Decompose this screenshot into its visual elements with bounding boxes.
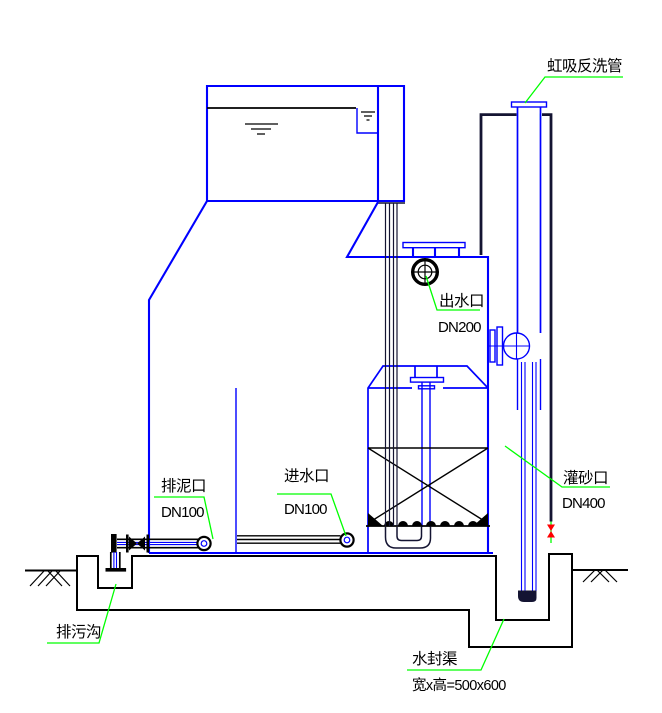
label-sewage-ditch: 排污沟: [47, 584, 116, 643]
outlet-size-label: DN200: [438, 319, 481, 336]
inner-filter-tank: [366, 366, 490, 553]
inlet-size-label: DN100: [284, 501, 327, 518]
seal-pipe-elbow: [518, 591, 537, 603]
water-seal-label: 水封渠: [412, 650, 457, 668]
leader-siphon-backwash: [525, 77, 623, 103]
elbow-flange: [111, 534, 117, 553]
water-seal-dim-label: 宽x高=500x600: [412, 677, 506, 694]
label-siphon-backwash: 虹吸反洗管: [525, 57, 623, 103]
foundation: [25, 554, 628, 647]
drain-valve-red-icon: [547, 525, 555, 532]
valve-flange-right: [147, 535, 150, 553]
mud-port-label: 排泥口: [161, 477, 206, 495]
drop-pipe-bore: [114, 552, 117, 568]
inner-tank-flange-collar: [419, 386, 435, 389]
label-outlet: 出水口 DN200: [426, 276, 484, 336]
label-mud-port: 排泥口 DN100: [154, 477, 213, 539]
outlet-port-symbol: [411, 258, 439, 286]
seal-drop-pipe: [522, 362, 537, 591]
inlet-pipe-end-flange: [340, 533, 353, 546]
inner-tank-flange-posts: [415, 366, 437, 378]
central-riser-pipe: [422, 382, 430, 527]
valve-flange-left: [126, 535, 129, 553]
siphon-chamber-top: [403, 243, 465, 258]
riser-top-flange: [512, 102, 547, 107]
inlet-pipe-walls: [237, 536, 340, 543]
drawing-canvas: 虹吸反洗管 出水口 DN200 排泥口 DN100 进水口 DN100 灌砂口 …: [0, 0, 662, 713]
mud-pipe-end-flange: [197, 537, 210, 550]
inner-tank-flange-plate: [411, 378, 444, 383]
sewage-ditch-label: 排污沟: [56, 623, 101, 641]
u-bend-pipe: [386, 527, 431, 548]
chamber-flange-posts: [413, 248, 459, 257]
label-water-seal: 水封渠 宽x高=500x600: [407, 619, 506, 694]
water-level-symbol: [245, 112, 375, 134]
upper-wash-tank: [207, 86, 405, 203]
label-inlet: 进水口 DN100: [277, 467, 346, 536]
sand-port-size-label: DN400: [562, 495, 605, 512]
chamber-flange-plate: [403, 243, 465, 248]
siphon-backwash-label: 虹吸反洗管: [547, 57, 622, 75]
engineering-drawing: 虹吸反洗管 出水口 DN200 排泥口 DN100 进水口 DN100 灌砂口 …: [0, 0, 662, 713]
sand-port-label: 灌砂口: [563, 469, 608, 487]
upper-tank-outline: [207, 86, 404, 201]
drain-valve-red-icon-2: [547, 531, 555, 538]
distribution-pipe: [386, 203, 398, 526]
label-sand-port: 灌砂口 DN400: [505, 446, 610, 512]
inlet-label: 进水口: [284, 467, 329, 485]
siphon-assembly: [481, 102, 555, 602]
drop-pipe-walls: [111, 552, 120, 568]
inlet-pipe-assembly: [237, 533, 354, 546]
drop-pipe-base: [106, 568, 127, 572]
backwash-riser-pipe: [518, 107, 541, 333]
mud-port-size-label: DN100: [161, 504, 204, 521]
ground-hatch-right-icon: [583, 570, 617, 582]
ground-hatch-left-icon: [30, 571, 70, 586]
outlet-label: 出水口: [439, 292, 484, 310]
